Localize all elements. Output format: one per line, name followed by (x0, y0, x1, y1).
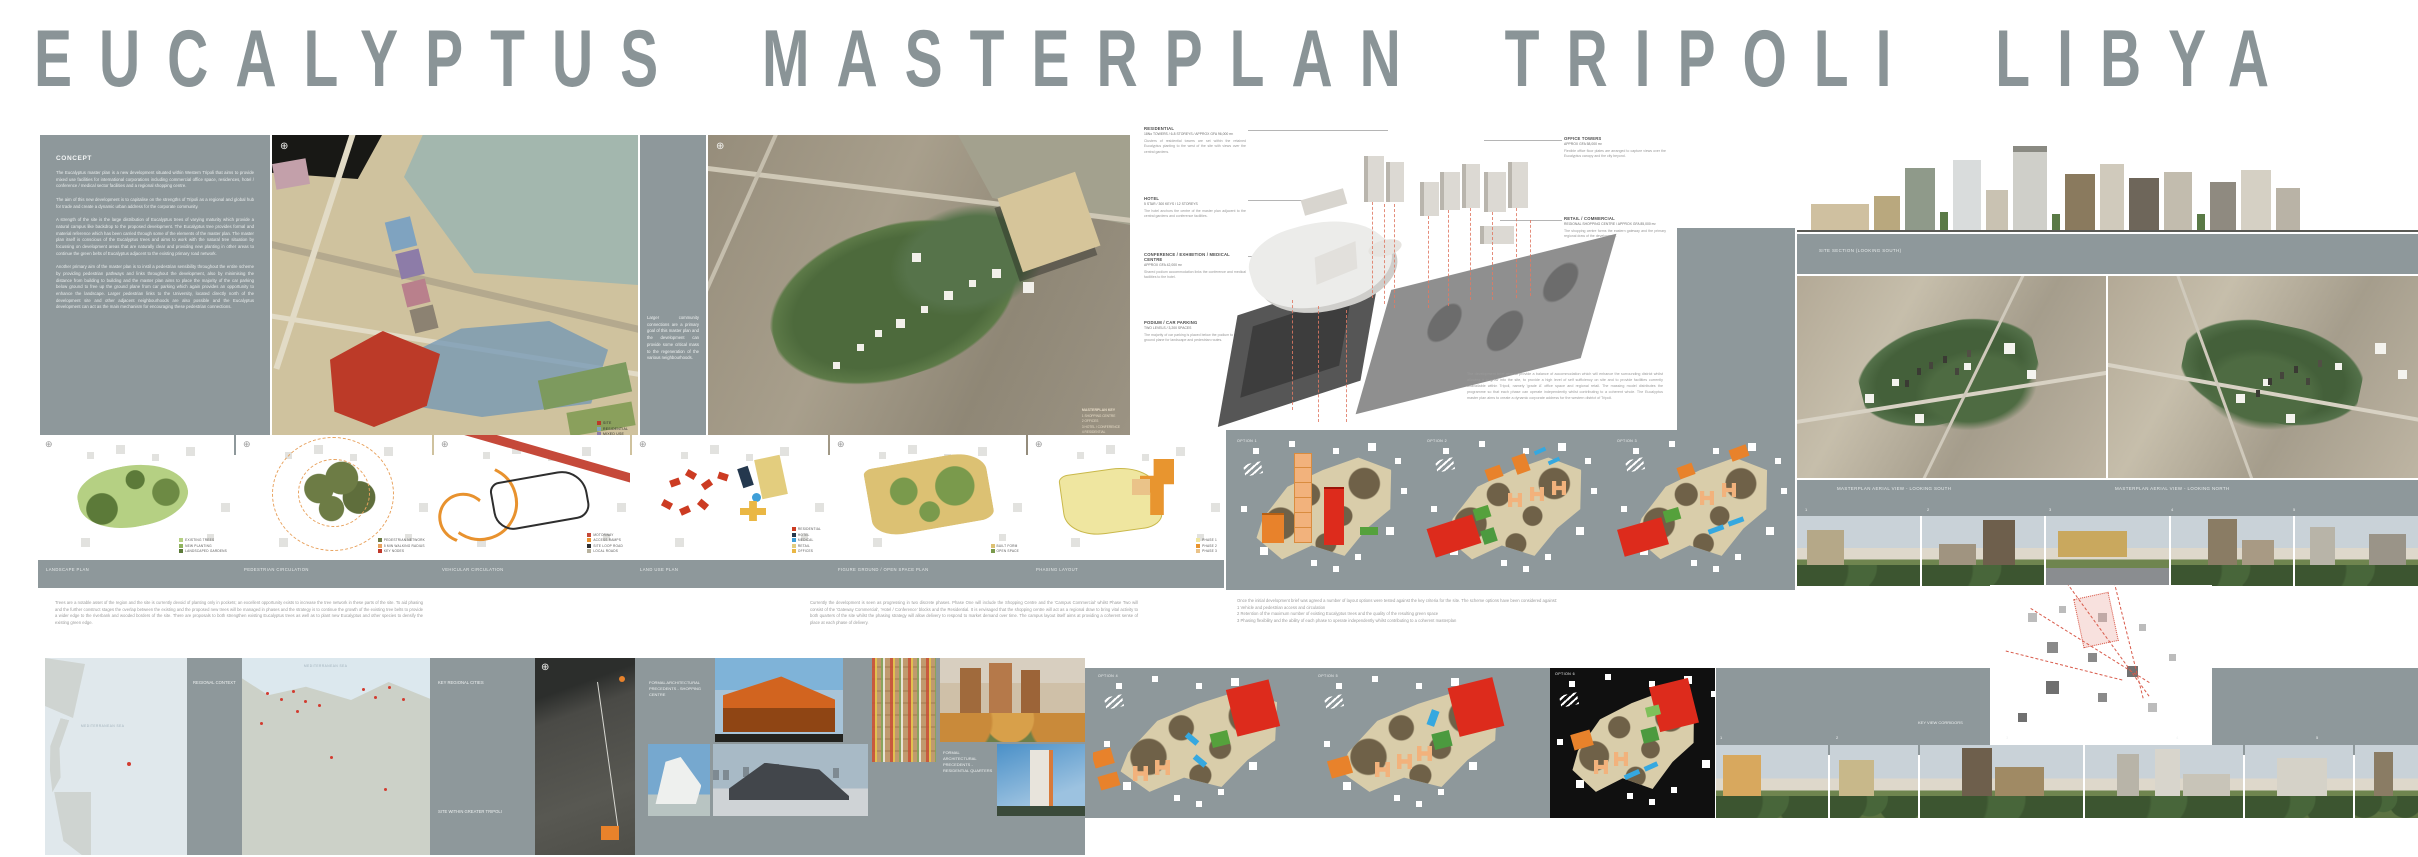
axon-annotation: OFFICE TOWERS APPROX GFA 58,000 m² Flexi… (1564, 136, 1666, 160)
decor-shape (940, 713, 1085, 742)
diagram-legend: RESIDENTIAL HOTEL MEDICAL RETAIL OFFICES (792, 526, 821, 554)
precedents-caption-2: FORMAL ARCHITECTURAL PRECEDENTS - RESIDE… (943, 750, 993, 774)
zone-education (272, 158, 310, 190)
north-arrow-icon: ⊕ (716, 142, 724, 152)
landuse-residential (685, 469, 697, 480)
axon-tower (1508, 162, 1528, 208)
legend-label: OPEN SPACE (997, 549, 1020, 553)
context-zoning-map: ⊕ SITE RESIDENTIAL MIXED USE EDUCATION A… (272, 135, 638, 455)
aerial-caption-bar: MASTERPLAN AERIAL VIEW - LOOKING SOUTH M… (1797, 480, 2418, 506)
block-retail (1324, 487, 1344, 545)
axon-tower (1480, 226, 1514, 244)
section-caption: SITE SECTION (LOOKING SOUTH) (1819, 248, 1901, 253)
aerial-key-title: MASTERPLAN KEY (1082, 408, 1120, 412)
annotation-title: HOTEL (1144, 196, 1246, 201)
projection-line (1346, 310, 1347, 422)
render-trees (2171, 565, 2294, 586)
elevation-render (1716, 745, 1828, 818)
legend-item: KEY NODES (378, 549, 425, 553)
diagram-landscape-plan: ⊕ EXISTING TREES NEW PLANTING LANDSCAPED… (38, 435, 234, 560)
diagram-caption: PEDESTRIAN CIRCULATION (244, 567, 309, 572)
axon-annotation: PODIUM / CAR PARKING TWO LEVELS / 3,200 … (1144, 320, 1246, 344)
context-buildings (1104, 694, 1124, 709)
body-text-3: Once the initial development brief was a… (1237, 598, 1582, 625)
context-buildings (1324, 694, 1344, 709)
section-building (2065, 174, 2095, 230)
legend-swatch (1196, 549, 1200, 553)
section-building (1953, 160, 1981, 230)
legend-label: MEDICAL (798, 538, 814, 542)
render-building (1723, 755, 1761, 799)
masterplan-options-bottom: OPTION 4 OPTION 5 OPT (1085, 668, 1715, 818)
section-building (2129, 178, 2159, 230)
context-buildings (1618, 443, 1622, 447)
option-plan: OPTION 1 (1232, 435, 1414, 585)
regional-caption: REGIONAL CONTEXT (193, 680, 236, 686)
section-building (1874, 196, 1900, 230)
regional-context-caption-block: REGIONAL CONTEXT (187, 658, 242, 855)
render-trees (2245, 796, 2353, 818)
legend-swatch (1196, 544, 1200, 548)
render-number: 1 (1720, 735, 1722, 740)
elevation-render (1830, 745, 1918, 818)
street-render (2046, 516, 2169, 586)
concept-panel: CONCEPT The Eucalyptus master plan is a … (40, 135, 270, 455)
render-number: 3 (2006, 735, 2008, 740)
landuse-hotel (737, 466, 754, 488)
render-building (2277, 758, 2327, 800)
north-arrow-icon: ⊕ (1035, 440, 1043, 449)
elevation-render (2245, 745, 2353, 818)
precedents-caption-1: FORMAL ARCHITECTURAL PRECEDENTS - SHOPPI… (649, 680, 711, 698)
legend-label: NEW PLANTING (185, 544, 212, 548)
render-number: 5 (2316, 735, 2318, 740)
projection-line (1318, 306, 1319, 422)
body-text-1: Trees are a notable asset of the region … (55, 600, 423, 627)
diagram-legend: EXISTING TREES NEW PLANTING LANDSCAPED G… (179, 537, 227, 554)
context-buildings (1428, 443, 1432, 447)
annotation-sub: TWO LEVELS / 3,200 SPACES (1144, 326, 1246, 330)
context-buildings (850, 445, 855, 450)
annotation-sub: 18No TOWERS / 6-8 STOREYS / APPROX GFA 9… (1144, 132, 1246, 136)
legend-label: RESIDENTIAL (603, 427, 628, 431)
city-markers (266, 692, 269, 695)
legend-item: PEDESTRIAN NETWORK (378, 538, 425, 542)
legend-swatch (179, 538, 183, 542)
render-road (2046, 568, 2169, 586)
presentation-board: EUCALYPTUS MASTERPLAN TRIPOLI LIBYA CONC… (0, 0, 2418, 857)
legend-swatch (792, 533, 796, 537)
diagram-phasing: ⊕ PHASE 1 PHASE 2 PHASE 3 (1028, 435, 1224, 560)
aerial-side-caption: Larger community connections are a prima… (640, 135, 706, 455)
axon-tower (1420, 182, 1439, 216)
elevation-render (2085, 745, 2243, 818)
legend-item: OPEN SPACE (991, 549, 1020, 553)
landuse-residential (669, 478, 681, 488)
north-arrow-icon: ⊕ (541, 663, 549, 673)
legend-item: 5 MIN WALKING RADIUS (378, 544, 425, 548)
legend-label: EXISTING TREES (185, 538, 214, 542)
north-arrow-icon: ⊕ (837, 440, 845, 449)
street-render (2171, 516, 2294, 586)
leader-line (1248, 130, 1388, 131)
projection-line (1394, 204, 1395, 308)
block-office (1728, 444, 1749, 461)
render-building (2058, 531, 2127, 556)
axon-tower (1364, 156, 1384, 202)
annotation-body: The hotel anchors the centre of the mast… (1144, 209, 1246, 220)
legend-swatch (991, 549, 995, 553)
tower-footprints (2148, 286, 2152, 293)
diagram-caption-bar: LANDSCAPE PLAN PEDESTRIAN CIRCULATION VE… (38, 560, 1224, 588)
annotation-sub: APPROX GFA 42,000 m² (1144, 263, 1246, 267)
legend-swatch (1196, 538, 1200, 542)
projection-line (1530, 220, 1531, 296)
legend-item: PHASE 1 (1196, 538, 1217, 542)
decor-shape (729, 763, 850, 800)
axon-tower (1462, 164, 1480, 208)
annotation-sub: 5 STAR / 300 KEYS / 12 STOREYS (1144, 202, 1246, 206)
landuse-residential (679, 505, 691, 515)
context-buildings (1321, 678, 1325, 682)
context-buildings (256, 445, 261, 450)
section-building (1986, 190, 2008, 230)
diagram-caption: PHASING LAYOUT (1036, 567, 1078, 572)
leader-line (1484, 140, 1562, 141)
legend-swatch (587, 538, 591, 542)
legend-item: HOTEL (792, 533, 821, 537)
street-view-number: 4 (2171, 507, 2173, 512)
context-buildings (1238, 443, 1242, 447)
section-building (2276, 188, 2300, 230)
tripoli-marker (127, 762, 131, 766)
street-view-number: 1 (1805, 507, 1807, 512)
annotation-body: Flexible office floor plates are arrange… (1564, 149, 1666, 160)
legend-swatch (792, 527, 796, 531)
projection-line (1292, 300, 1293, 410)
body-text-2: Currently the development is seen as pro… (810, 600, 1138, 627)
concept-paragraph: The aim of this new development is to ca… (56, 197, 254, 210)
option-label: OPTION 4 (1098, 674, 1118, 678)
legend-label: LANDSCAPED GARDENS (185, 549, 227, 553)
precedents-panel: FORMAL ARCHITECTURAL PRECEDENTS - SHOPPI… (635, 658, 1085, 855)
render-trees (1797, 565, 1920, 586)
legend-item: SITE (597, 421, 630, 425)
north-arrow-icon: ⊕ (280, 142, 288, 152)
legend-item: RETAIL (792, 544, 821, 548)
legend-item: BUILT FORM (991, 544, 1020, 548)
land-shape (45, 658, 85, 718)
landscape-shape (73, 454, 193, 538)
precedent-photo-tower (997, 744, 1085, 816)
diagram-land-use: ⊕ RESIDENTIAL HOTEL MEDICAL RETAIL OFFIC… (632, 435, 828, 560)
diagram-legend: BUILT FORM OPEN SPACE (991, 542, 1020, 553)
site-footprint (1438, 454, 1591, 573)
block-residential-stack (1294, 453, 1312, 543)
concept-paragraph: Another primary aim of the master plan i… (56, 264, 254, 311)
street-view-number: 3 (2049, 507, 2051, 512)
precedent-photo-residential-towers (940, 658, 1085, 742)
sea-label: MEDITERRANEAN SEA (304, 664, 347, 668)
axon-annotation: HOTEL 5 STAR / 300 KEYS / 12 STOREYS The… (1144, 196, 1246, 220)
masterplan-options-top: OPTION 1 OPTION 2 OPTION 3 (1226, 430, 1795, 590)
render-building (2117, 754, 2139, 802)
projection-line (1492, 212, 1493, 300)
land-shape (45, 792, 91, 855)
render-building (1807, 530, 1844, 569)
precedent-photo-museum (648, 744, 710, 816)
diagram-caption: FIGURE GROUND / OPEN SPACE PLAN (838, 567, 929, 572)
legend-item: OFFICES (792, 549, 821, 553)
option-label: OPTION 5 (1318, 674, 1338, 678)
render-trees (1716, 796, 1828, 818)
context-buildings (58, 445, 63, 450)
legend-swatch (991, 544, 995, 548)
block-green (1360, 527, 1378, 535)
axon-annotation: RESIDENTIAL 18No TOWERS / 6-8 STOREYS / … (1144, 126, 1246, 155)
block-office (1093, 748, 1115, 769)
landuse-medical (752, 493, 761, 502)
legend-label: PHASE 1 (1202, 538, 1217, 542)
decor-shape (1030, 750, 1053, 808)
context-buildings (652, 445, 657, 450)
north-arrow-icon: ⊕ (441, 440, 449, 449)
render-trees (1922, 565, 2045, 586)
elevation-render (1920, 745, 2083, 818)
legend-item: ACCESS RAMPS (587, 538, 623, 542)
legend-label: LOCAL ROADS (593, 549, 618, 553)
legend-label: PHASE 2 (1202, 544, 1217, 548)
building-footprints (708, 135, 713, 140)
legend-label: SITE LOOP ROAD (593, 544, 623, 548)
landuse-offices (740, 501, 766, 521)
render-trees (2085, 796, 2243, 818)
render-trees (2295, 565, 2418, 586)
phase-3-area (1132, 479, 1150, 495)
bottom-render-strip (1716, 745, 2418, 818)
legend-label: PEDESTRIAN NETWORK (384, 538, 425, 542)
tower-footprints (1797, 276, 1801, 283)
legend-swatch (792, 549, 796, 553)
axon-annotation: CONFERENCE / EXHIBITION / MEDICAL CENTRE… (1144, 252, 1246, 281)
legend-label: OFFICES (798, 549, 813, 553)
context-buildings (1048, 445, 1053, 450)
legend-swatch (587, 533, 591, 537)
section-building (2100, 164, 2124, 230)
site-zoom-square (601, 826, 619, 840)
street-render (1922, 516, 2045, 586)
context-buildings (1559, 692, 1579, 707)
legend-item: RESIDENTIAL (792, 527, 821, 531)
legend-item: MOTORWAY (587, 533, 623, 537)
decor-shape (997, 806, 1085, 816)
precedent-photo-coloured-facade (872, 658, 936, 762)
block-medical (1534, 447, 1547, 456)
street-view-number: 2 (1927, 507, 1929, 512)
forest-blob (2196, 340, 2330, 437)
annotation-body: Shared podium accommodation links the co… (1144, 270, 1246, 281)
render-building (1839, 760, 1874, 798)
legend-label: RETAIL (798, 544, 810, 548)
option-plan: OPTION 4 (1093, 670, 1303, 816)
context-buildings (1243, 461, 1263, 476)
render-trees (1830, 796, 1918, 818)
legend-label: 5 MIN WALKING RADIUS (384, 544, 425, 548)
legend-swatch (587, 549, 591, 553)
render-trees (2355, 796, 2418, 818)
diagram-caption: LANDSCAPE PLAN (46, 567, 89, 572)
decor-shape (713, 770, 719, 780)
context-buildings (1435, 457, 1455, 472)
annotation-title: OFFICE TOWERS (1564, 136, 1666, 141)
view-corridor-plan (1990, 585, 2212, 755)
annotation-title: RESIDENTIAL (1144, 126, 1246, 131)
annotation-title: PODIUM / CAR PARKING (1144, 320, 1246, 325)
bottom-render-index-strip: 1 2 3 4 5 (1716, 734, 2418, 743)
precedent-photo-dark-building (713, 744, 868, 816)
north-arrow-icon: ⊕ (243, 440, 251, 449)
street-view-number: 5 (2293, 507, 2295, 512)
annotation-body: Clusters of residential towers are set w… (1144, 139, 1246, 155)
render-building (1939, 544, 1976, 565)
precedent-photo-shopping-centre (715, 658, 843, 742)
option-plan: OPTION 2 (1422, 435, 1604, 585)
legend-label: HOTEL (798, 533, 810, 537)
decor-shape (404, 135, 638, 285)
legend-swatch (792, 538, 796, 542)
sea-label: MEDITERRANEAN SEA (81, 724, 124, 728)
axon-tower (1440, 172, 1460, 210)
street-render (2295, 516, 2418, 586)
decor-shape (715, 734, 843, 742)
aerial-caption-south: MASTERPLAN AERIAL VIEW - LOOKING SOUTH (1837, 486, 1951, 491)
leader-line (1500, 220, 1562, 221)
legend-item: LOCAL ROADS (587, 549, 623, 553)
landuse-residential (697, 499, 709, 511)
section-building (1811, 204, 1869, 230)
masterplan-aerial-photo: ⊕ MASTERPLAN KEY 1 SHOPPING CENTRE 2 OFF… (708, 135, 1130, 455)
legend-swatch (378, 549, 382, 553)
zone-site (330, 331, 440, 427)
legend-item: SITE LOOP ROAD (587, 544, 623, 548)
landuse-residential (661, 499, 673, 510)
annotation-title: RETAIL / COMMERCIAL (1564, 216, 1666, 221)
elevation-render (2355, 745, 2418, 818)
street-view-index-strip: 1 2 3 4 5 (1797, 506, 2418, 516)
section-tree (1940, 212, 1948, 230)
option-label: OPTION 6 (1555, 672, 1575, 676)
legend-swatch (597, 427, 601, 431)
libya-map: MEDITERRANEAN SEA (242, 658, 430, 855)
render-building (2310, 527, 2335, 569)
section-building (2164, 172, 2192, 230)
figure-ground-buildings (1990, 585, 1995, 590)
built-open-space (863, 449, 995, 539)
option-plan-preferred: OPTION 6 (1550, 668, 1715, 818)
diagram-legend: PEDESTRIAN NETWORK 5 MIN WALKING RADIUS … (378, 537, 425, 554)
mediterranean-map: MEDITERRANEAN SEA (45, 658, 187, 855)
diagram-caption: LAND USE PLAN (640, 567, 678, 572)
legend-label: KEY NODES (384, 549, 404, 553)
land-shape-italy (45, 716, 76, 793)
site-caption: SITE WITHIN GREATER TRIPOLI (438, 809, 528, 815)
decor-shape (723, 708, 836, 732)
axon-mass (1301, 188, 1348, 216)
site-section-elevation (1797, 142, 2418, 232)
legend-item: RESIDENTIAL (597, 427, 630, 431)
annotation-body: The majority of car parking is placed be… (1144, 333, 1246, 344)
legend-label: ACCESS RAMPS (593, 538, 621, 542)
context-buildings (1101, 678, 1105, 682)
projection-line (1516, 208, 1517, 298)
site-footprint (1628, 454, 1778, 572)
axon-paragraph: The development brief aims to provide a … (1467, 372, 1663, 402)
legend-item: NEW PLANTING (179, 544, 227, 548)
north-arrow-icon: ⊕ (45, 440, 53, 449)
walking-radius (298, 459, 370, 527)
render-trees (1920, 796, 2083, 818)
option-label: OPTION 3 (1617, 439, 1637, 443)
section-building (2241, 170, 2271, 230)
render-number: 2 (1836, 735, 1838, 740)
section-tree (2052, 214, 2060, 230)
projection-line (1428, 216, 1429, 308)
legend-label: BUILT FORM (997, 544, 1018, 548)
block-office (1097, 772, 1120, 791)
diagram-vehicular-circulation: ⊕ MOTORWAY ACCESS RAMPS SITE LOOP ROAD L… (434, 435, 630, 560)
option-label: OPTION 1 (1237, 439, 1257, 443)
concept-paragraph: A strength of the site is the large dist… (56, 217, 254, 257)
block-office (1262, 513, 1284, 543)
axon-tower (1484, 172, 1506, 212)
aerial-render-north (2108, 276, 2418, 478)
decor-shape (655, 757, 701, 805)
legend-label: RESIDENTIAL (798, 527, 821, 531)
building-footprints (2168, 276, 2173, 281)
diagram-pedestrian-circulation: ⊕ PEDESTRIAN NETWORK 5 MIN WALKING RADIU… (236, 435, 432, 560)
side-caption-text: Larger community connections are a prima… (647, 315, 699, 362)
zone-residential (385, 216, 417, 251)
landuse-residential (717, 472, 729, 482)
section-building (1905, 168, 1935, 230)
option-plan: OPTION 3 (1612, 435, 1790, 585)
legend-swatch (378, 538, 382, 542)
legend-swatch (587, 544, 591, 548)
legend-label: SITE (603, 421, 612, 425)
landuse-retail (754, 455, 788, 500)
diagram-legend: PHASE 1 PHASE 2 PHASE 3 (1196, 537, 1217, 554)
locator-line (597, 682, 619, 831)
projection-line (1470, 208, 1471, 300)
legend-item: PHASE 2 (1196, 544, 1217, 548)
section-tree (2197, 214, 2205, 230)
diagram-legend: MOTORWAY ACCESS RAMPS SITE LOOP ROAD LOC… (587, 531, 623, 553)
concept-paragraph: The Eucalyptus master plan is a new deve… (56, 170, 254, 190)
aerial-key-item: 3 HOTEL / CONFERENCE (1082, 425, 1120, 430)
diagram-caption: VEHICULAR CIRCULATION (442, 567, 504, 572)
street-render (1797, 516, 1920, 586)
diagram-figure-ground: ⊕ BUILT FORM OPEN SPACE (830, 435, 1026, 560)
context-buildings (1554, 676, 1558, 680)
legend-item: PHASE 3 (1196, 549, 1217, 553)
north-arrow-icon: ⊕ (639, 440, 647, 449)
tripoli-satellite-photo: ⊕ (535, 658, 635, 855)
legend-item: EXISTING TREES (179, 538, 227, 542)
projection-line (1372, 202, 1373, 298)
legend-swatch (378, 544, 382, 548)
aerial-render-south (1797, 276, 2106, 478)
context-buildings (1625, 457, 1645, 472)
